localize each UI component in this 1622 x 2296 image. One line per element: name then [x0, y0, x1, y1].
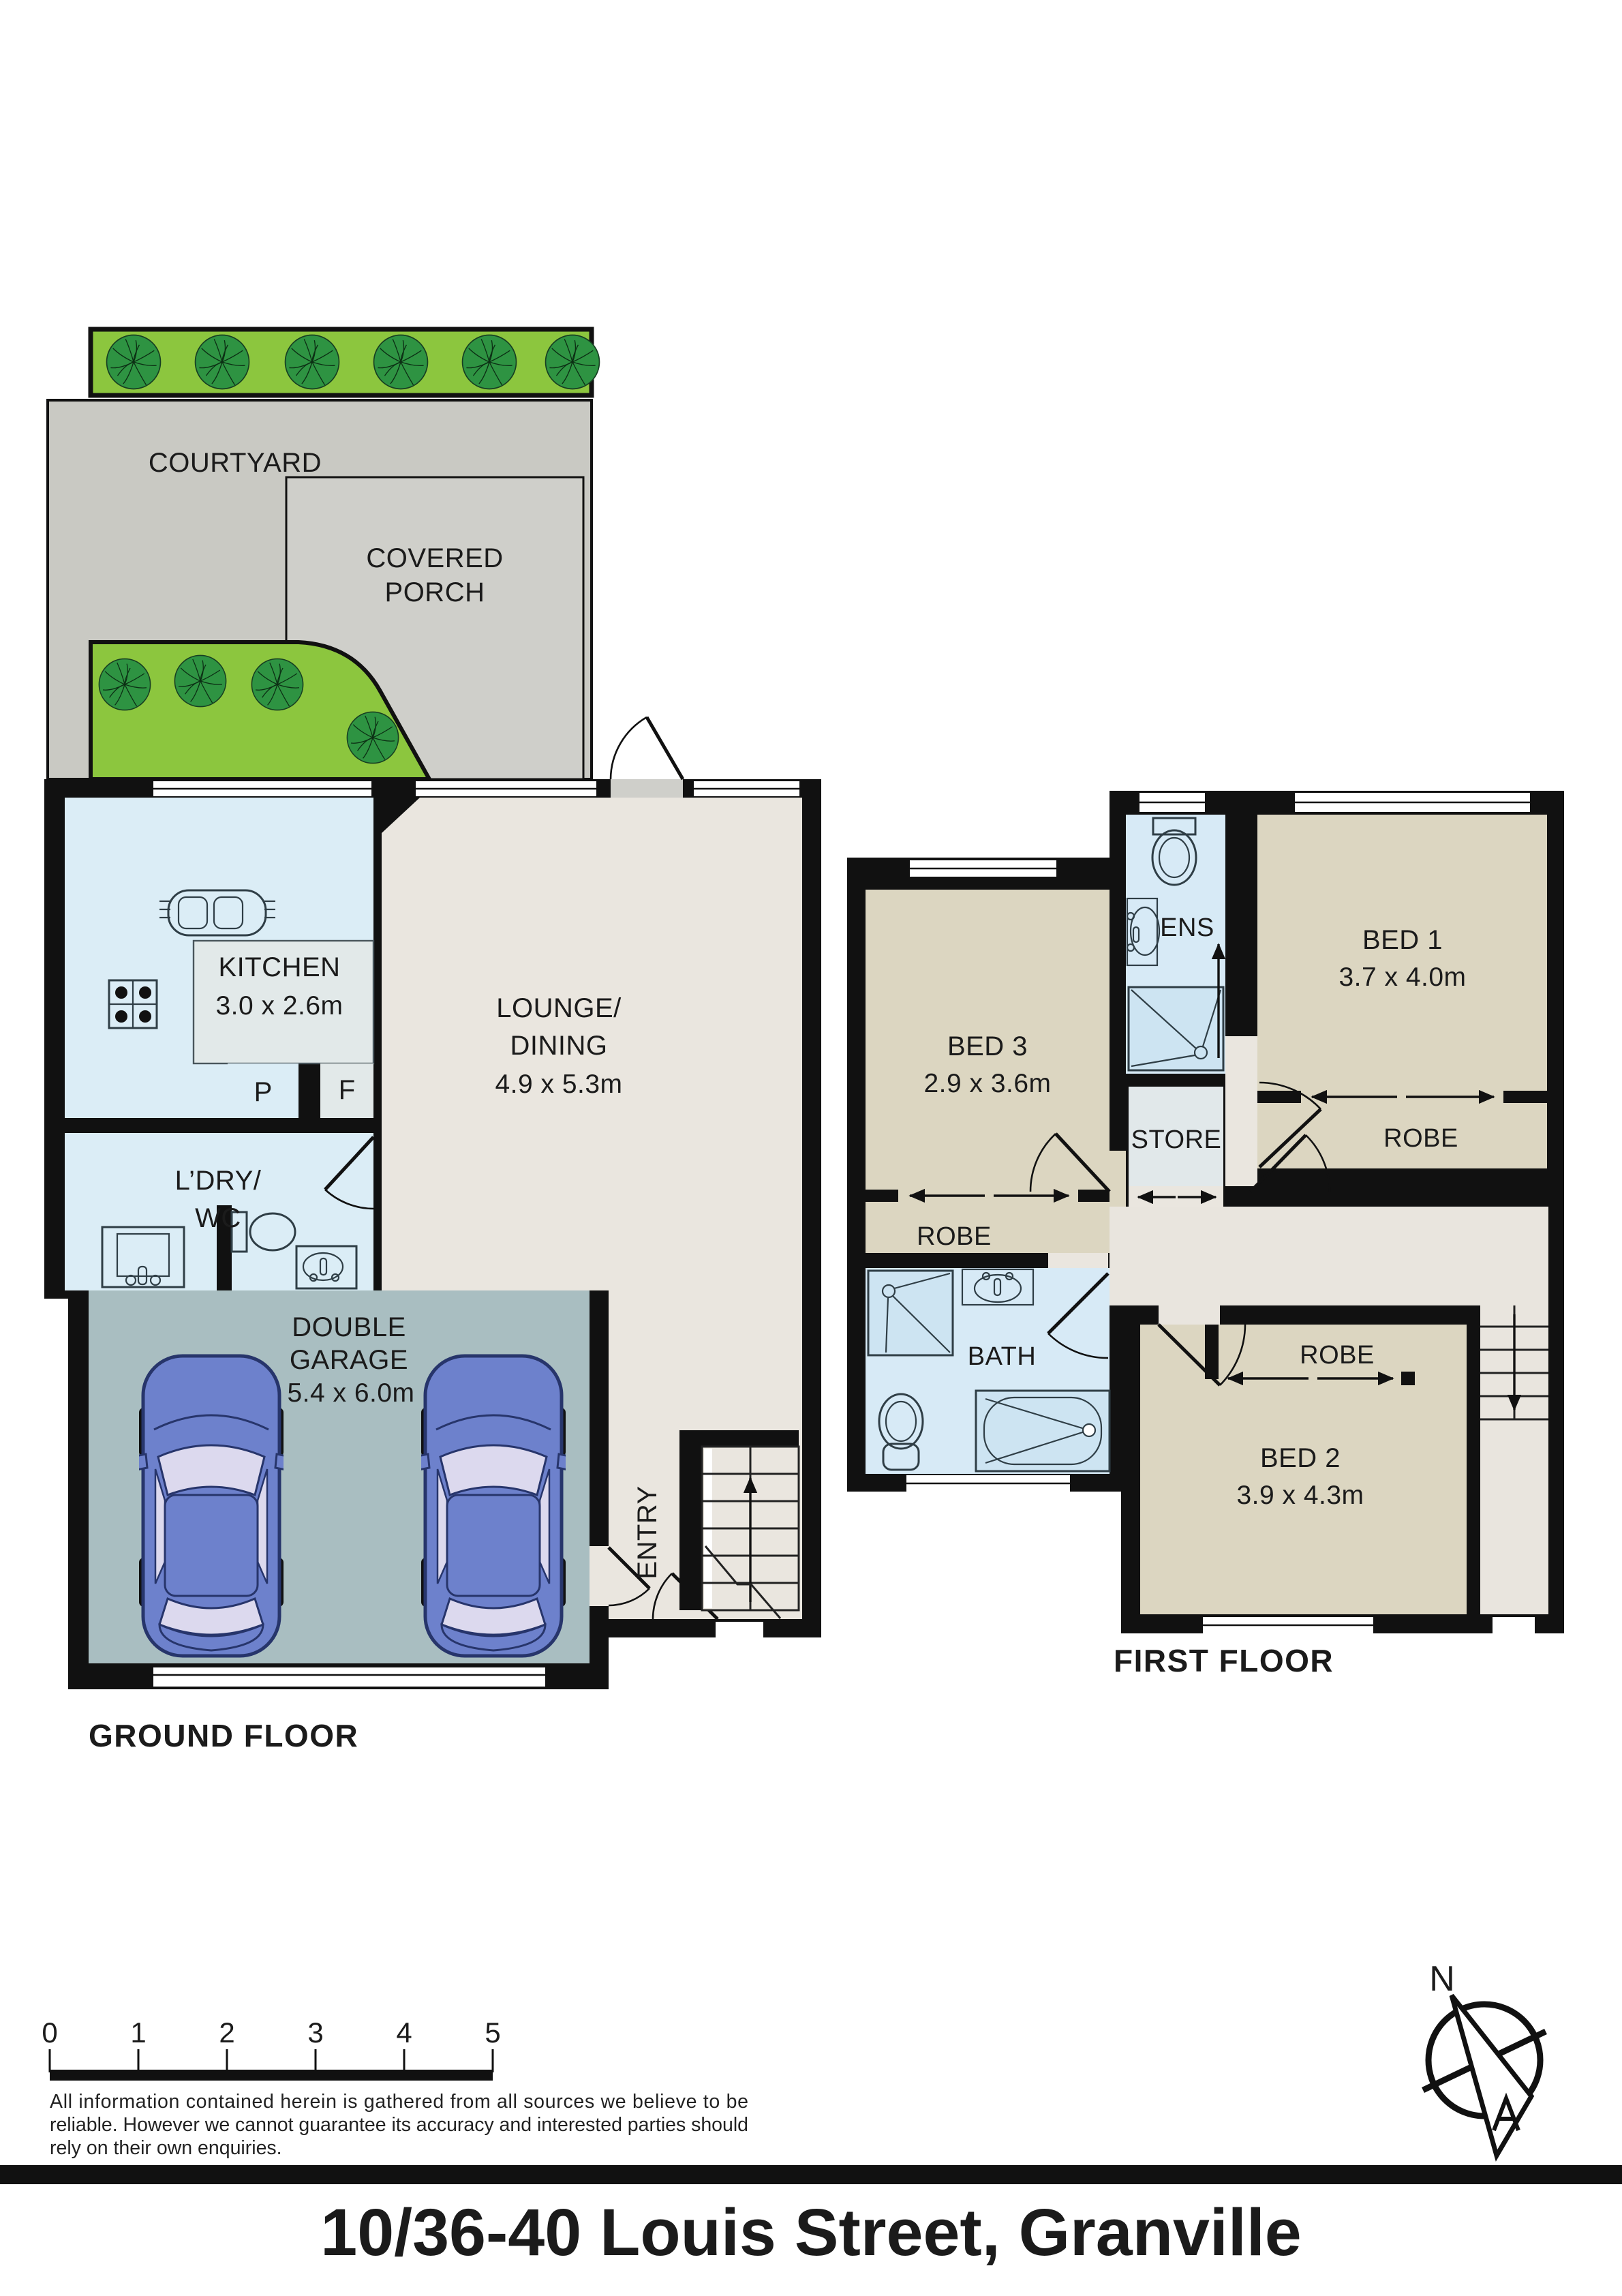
- bed3-label: BED 3: [947, 1031, 1028, 1061]
- disclaimer: All information contained herein is gath…: [50, 2091, 748, 2159]
- front-door: [611, 717, 683, 798]
- scale-tick-3: 3: [307, 2016, 323, 2049]
- first-floor-title: FIRST FLOOR: [1114, 1643, 1334, 1678]
- hall-left-extension: [1110, 1207, 1126, 1305]
- kitchen-dims: 3.0 x 2.6m: [215, 991, 343, 1021]
- disclaimer-line2: reliable. However we cannot guarantee it…: [50, 2114, 748, 2136]
- disclaimer-line1: All information contained herein is gath…: [50, 2091, 748, 2113]
- scale-tick-5: 5: [485, 2016, 500, 2049]
- lounge-label: LOUNGE/: [496, 993, 622, 1023]
- courtyard-area: COURTYARD COVERED PORCH: [48, 400, 592, 779]
- footer-divider: [0, 2165, 1622, 2184]
- bed2-door-opening: [1159, 1305, 1220, 1325]
- ground-windows: [153, 781, 799, 796]
- page-title: 10/36-40 Louis Street, Granville: [320, 2195, 1301, 2269]
- ground-stairs: [679, 1430, 799, 1618]
- vestibule: [1225, 1036, 1257, 1186]
- disclaimer-line3: rely on their own enquiries.: [50, 2137, 282, 2159]
- scale-tick-4: 4: [396, 2016, 412, 2049]
- kitchen-label: KITCHEN: [218, 952, 340, 982]
- scale-tick-0: 0: [42, 2016, 57, 2049]
- bed3-robe-label: ROBE: [917, 1222, 992, 1251]
- ground-floor-plan: COURTYARD COVERED PORCH: [44, 329, 821, 1753]
- bed3-dims: 2.9 x 3.6m: [923, 1069, 1051, 1098]
- store-label: STORE: [1131, 1126, 1222, 1154]
- entry-door-sill: [716, 1622, 763, 1637]
- bed1-dims: 3.7 x 4.0m: [1338, 963, 1466, 992]
- scale-bar: 0 1 2 3 4 5: [42, 2016, 500, 2081]
- tree-icon: [107, 335, 161, 389]
- scale-tick-2: 2: [219, 2016, 234, 2049]
- bed2-robe-label: ROBE: [1300, 1341, 1375, 1370]
- tree-icon: [174, 655, 226, 706]
- first-floor-plan: BED 3 2.9 x 3.6m ENS STORE BED 1 3.7 x 4…: [847, 791, 1564, 1678]
- laundry-label2: WC: [195, 1203, 241, 1233]
- tree-icon: [251, 659, 303, 710]
- bed1-label: BED 1: [1362, 925, 1443, 955]
- tree-icon: [546, 335, 600, 389]
- lounge-label2: DINING: [510, 1031, 608, 1061]
- tree-icon: [347, 712, 398, 763]
- fridge-label: F: [339, 1075, 355, 1105]
- bed3-door-opening: [1110, 1151, 1126, 1207]
- car-icon: [414, 1356, 572, 1656]
- ground-floor-title: GROUND FLOOR: [89, 1718, 358, 1753]
- garage-entry-opening: [590, 1546, 609, 1606]
- scale-tick-1: 1: [130, 2016, 146, 2049]
- front-door-opening: [611, 779, 683, 798]
- laundry-label: L’DRY/: [175, 1166, 262, 1196]
- garden-strip: [91, 329, 599, 395]
- tree-icon: [99, 659, 150, 710]
- garage-door-opening: [153, 1667, 545, 1687]
- floorplan-canvas: COURTYARD COVERED PORCH: [0, 0, 1622, 2296]
- compass-icon: N: [1423, 1959, 1546, 2156]
- tree-icon: [196, 335, 249, 389]
- entry-label: ENTRY: [632, 1485, 662, 1579]
- garage-dims: 5.4 x 6.0m: [287, 1378, 414, 1408]
- tree-icon: [374, 335, 428, 389]
- bed1-robe-label: ROBE: [1383, 1124, 1458, 1153]
- bath-label: BATH: [968, 1342, 1037, 1371]
- bed2-label: BED 2: [1260, 1443, 1341, 1473]
- bed2-dims: 3.9 x 4.3m: [1236, 1481, 1364, 1510]
- garage-label2: GARAGE: [290, 1345, 408, 1375]
- car-icon: [132, 1356, 290, 1656]
- kitchen-room-extension: [65, 1063, 228, 1118]
- bath-door-opening: [1048, 1253, 1108, 1268]
- stair-landing-window: [1493, 1617, 1535, 1633]
- floorplan-page: COURTYARD COVERED PORCH: [0, 0, 1622, 2296]
- garage-label: DOUBLE: [292, 1312, 406, 1342]
- courtyard-label: COURTYARD: [149, 448, 322, 478]
- ens-label: ENS: [1160, 913, 1214, 942]
- hallway: [1126, 1207, 1548, 1305]
- compass-north-label: N: [1429, 1959, 1455, 1999]
- pantry-label: P: [254, 1077, 273, 1107]
- covered-porch-label2: PORCH: [385, 577, 485, 607]
- tree-icon: [286, 335, 339, 389]
- covered-porch-label: COVERED: [366, 543, 503, 573]
- scale-bar-rule: [50, 2070, 493, 2081]
- tree-icon: [463, 335, 517, 389]
- lounge-dims: 4.9 x 5.3m: [495, 1070, 622, 1099]
